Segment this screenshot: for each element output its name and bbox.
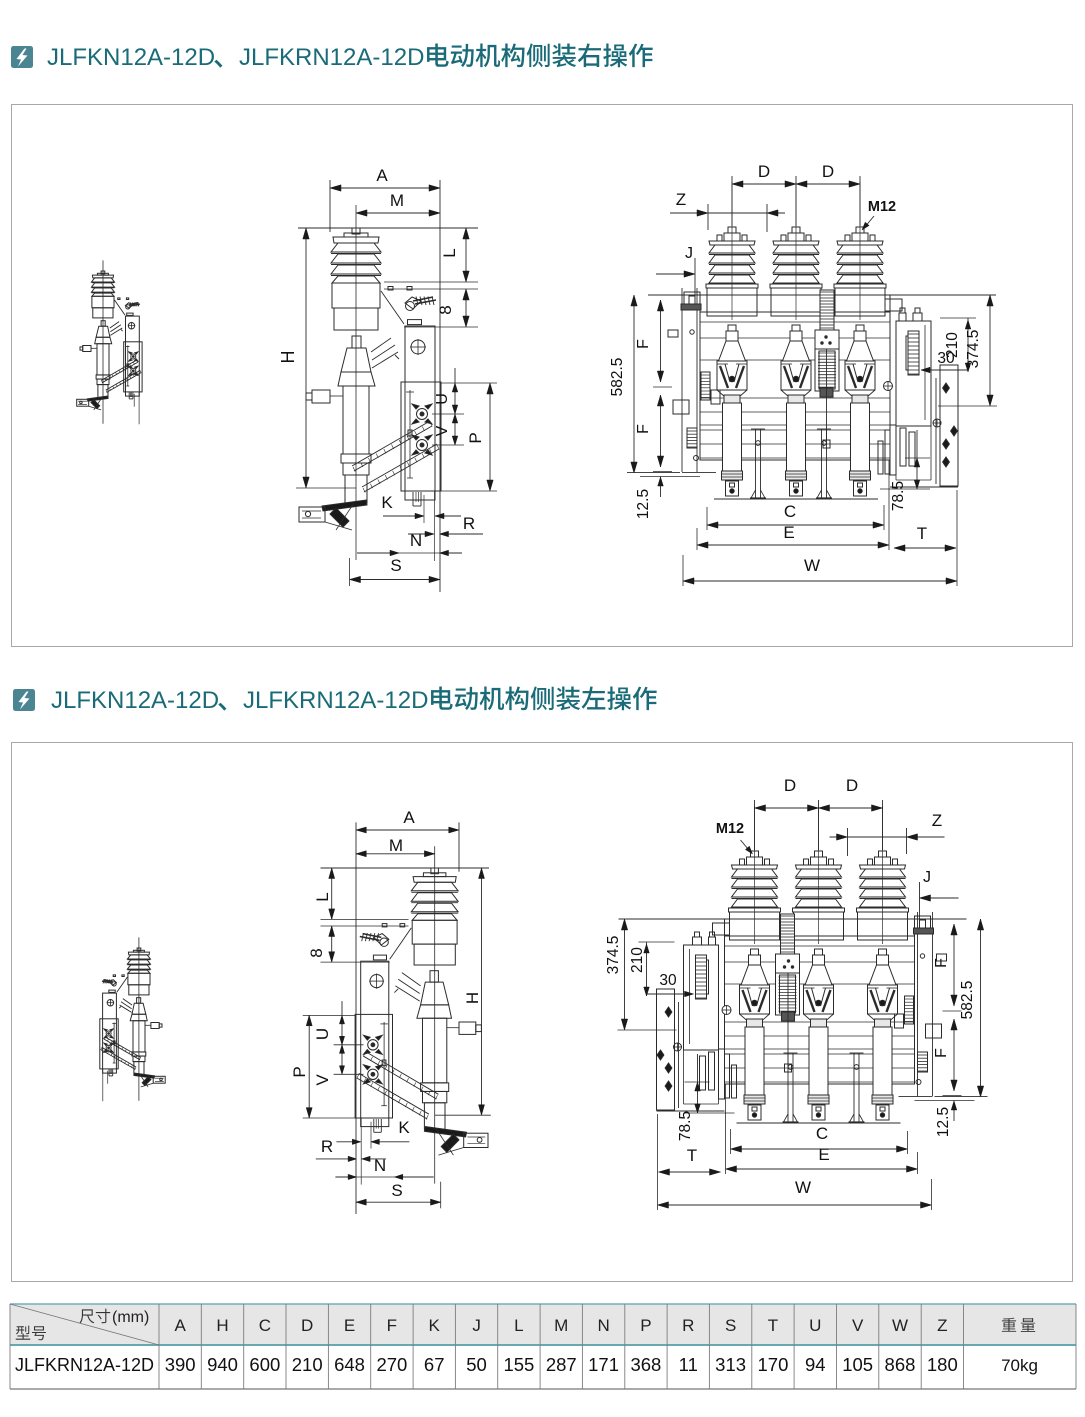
svg-text:368: 368 <box>630 1354 661 1375</box>
svg-text:W: W <box>804 556 820 575</box>
svg-text:270: 270 <box>376 1354 407 1375</box>
svg-text:67: 67 <box>424 1354 445 1375</box>
svg-text:390: 390 <box>165 1354 196 1375</box>
svg-text:30: 30 <box>659 972 677 989</box>
svg-text:H: H <box>216 1316 228 1335</box>
svg-text:A: A <box>174 1316 186 1335</box>
svg-text:S: S <box>391 1181 402 1200</box>
svg-text:287: 287 <box>546 1354 577 1375</box>
svg-text:P: P <box>290 1066 309 1077</box>
svg-text:J: J <box>685 245 693 262</box>
svg-text:374.5: 374.5 <box>965 330 982 369</box>
svg-text:374.5: 374.5 <box>605 936 622 975</box>
svg-text:F: F <box>933 958 950 968</box>
svg-text:D: D <box>758 162 770 181</box>
svg-text:N: N <box>410 531 422 550</box>
svg-text:K: K <box>381 493 393 512</box>
svg-text:M: M <box>390 191 404 210</box>
svg-text:P: P <box>466 432 485 443</box>
svg-text:T: T <box>768 1316 778 1335</box>
svg-text:78.5: 78.5 <box>890 481 907 511</box>
svg-text:T: T <box>687 1146 697 1165</box>
svg-text:A: A <box>376 166 388 185</box>
svg-text:L: L <box>514 1316 523 1335</box>
svg-text:E: E <box>344 1316 355 1335</box>
svg-text:940: 940 <box>207 1354 238 1375</box>
svg-text:JLFKRN12A-12D: JLFKRN12A-12D <box>239 44 424 71</box>
svg-text:V: V <box>852 1316 864 1335</box>
svg-text:U: U <box>313 1028 332 1040</box>
svg-text:D: D <box>301 1316 313 1335</box>
svg-text:8: 8 <box>307 948 326 957</box>
svg-text:S: S <box>725 1316 736 1335</box>
svg-text:170: 170 <box>758 1354 789 1375</box>
svg-text:M: M <box>554 1316 568 1335</box>
svg-text:8: 8 <box>436 305 455 314</box>
svg-text:M12: M12 <box>716 821 744 837</box>
svg-text:J: J <box>472 1316 481 1335</box>
svg-text:Z: Z <box>932 811 942 830</box>
svg-text:12.5: 12.5 <box>635 489 652 519</box>
svg-text:582.5: 582.5 <box>609 358 626 397</box>
svg-text:210: 210 <box>292 1354 323 1375</box>
svg-text:N: N <box>374 1156 386 1175</box>
svg-text:S: S <box>390 556 401 575</box>
svg-text:C: C <box>816 1124 828 1143</box>
svg-text:E: E <box>818 1145 829 1164</box>
svg-text:210: 210 <box>629 947 646 973</box>
svg-text:155: 155 <box>503 1354 534 1375</box>
svg-text:180: 180 <box>927 1354 958 1375</box>
svg-text:F: F <box>933 1048 950 1058</box>
svg-text:K: K <box>429 1316 441 1335</box>
svg-text:W: W <box>795 1178 811 1197</box>
svg-text:F: F <box>635 424 652 434</box>
svg-text:D: D <box>822 162 834 181</box>
svg-text:Z: Z <box>937 1316 947 1335</box>
svg-text:JLFKRN12A-12D: JLFKRN12A-12D <box>15 1355 154 1375</box>
svg-text:T: T <box>917 524 927 543</box>
svg-text:J: J <box>923 869 931 886</box>
svg-text:F: F <box>635 339 652 349</box>
svg-text:50: 50 <box>466 1354 487 1375</box>
svg-text:JLFKN12A-12D: JLFKN12A-12D <box>47 44 215 71</box>
svg-text:600: 600 <box>249 1354 280 1375</box>
svg-text:C: C <box>784 502 796 521</box>
svg-text:94: 94 <box>805 1354 826 1375</box>
svg-text:C: C <box>259 1316 271 1335</box>
svg-text:H: H <box>278 351 298 364</box>
svg-text:L: L <box>440 248 459 257</box>
svg-text:868: 868 <box>885 1354 916 1375</box>
svg-text:171: 171 <box>588 1354 619 1375</box>
svg-text:JLFKN12A-12D: JLFKN12A-12D <box>51 687 219 714</box>
svg-text:V: V <box>434 425 451 436</box>
svg-text:78.5: 78.5 <box>677 1111 694 1141</box>
svg-text:JLFKRN12A-12D: JLFKRN12A-12D <box>243 687 428 714</box>
svg-text:582.5: 582.5 <box>959 981 976 1020</box>
svg-text:Z: Z <box>676 190 686 209</box>
svg-text:105: 105 <box>842 1354 873 1375</box>
svg-text:M12: M12 <box>868 199 896 215</box>
svg-text:F: F <box>387 1316 397 1335</box>
svg-text:12.5: 12.5 <box>935 1107 952 1137</box>
svg-text:R: R <box>463 514 475 533</box>
svg-text:A: A <box>403 808 415 827</box>
svg-text:P: P <box>640 1316 651 1335</box>
svg-text:D: D <box>784 776 796 795</box>
svg-text:V: V <box>313 1074 332 1086</box>
svg-text:R: R <box>682 1316 694 1335</box>
svg-text:H: H <box>463 992 482 1004</box>
svg-text:U: U <box>809 1316 821 1335</box>
svg-text:D: D <box>846 776 858 795</box>
svg-text:210: 210 <box>944 332 961 358</box>
svg-text:M: M <box>389 836 403 855</box>
svg-text:U: U <box>434 393 451 405</box>
svg-text:W: W <box>892 1316 908 1335</box>
svg-text:R: R <box>321 1137 333 1156</box>
svg-text:(mm): (mm) <box>112 1309 149 1326</box>
svg-text:L: L <box>313 892 332 901</box>
svg-text:E: E <box>783 523 794 542</box>
svg-text:648: 648 <box>334 1354 365 1375</box>
svg-text:11: 11 <box>679 1354 698 1375</box>
svg-text:K: K <box>398 1118 410 1137</box>
svg-text:N: N <box>597 1316 609 1335</box>
svg-text:313: 313 <box>715 1354 746 1375</box>
svg-text:70kg: 70kg <box>1001 1356 1038 1375</box>
